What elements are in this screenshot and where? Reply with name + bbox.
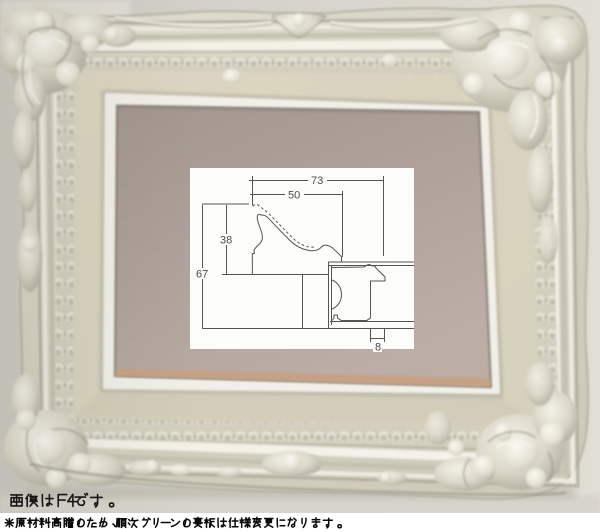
svg-text:8: 8 [375, 342, 381, 354]
svg-text:73: 73 [311, 175, 323, 187]
svg-text:50: 50 [288, 190, 300, 202]
svg-text:38: 38 [220, 235, 232, 247]
svg-text:67: 67 [196, 269, 208, 281]
